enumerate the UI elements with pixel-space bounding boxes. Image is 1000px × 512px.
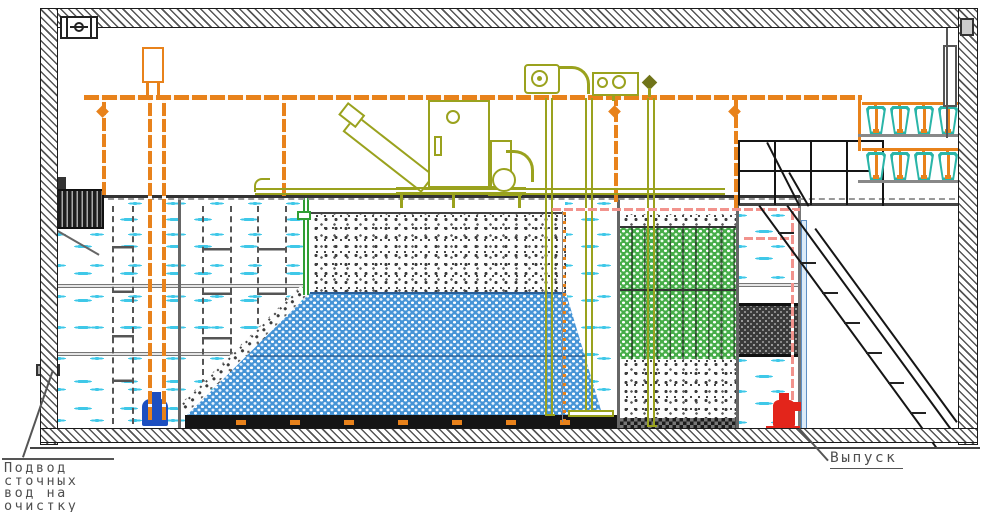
air-riser [282, 100, 286, 196]
fan-icon-axis [70, 26, 88, 28]
stair-step [844, 322, 860, 324]
air-vessel [938, 106, 958, 134]
water-level-dashed-line [58, 198, 955, 200]
inlet-label: Подвод сточных вод на очистку [4, 462, 78, 512]
olive-downpipe [647, 98, 649, 427]
wall-anchor-plate [960, 18, 974, 36]
compressor-dial [597, 77, 608, 88]
olive-pipe-elbow [647, 425, 657, 427]
air-vessel [914, 106, 934, 134]
blower-hub [537, 76, 542, 81]
blower-outlet-curve [558, 66, 590, 94]
green-divider-cap [297, 211, 311, 220]
wastewater-plant-section-drawing: Подвод сточных вод на очистку Выпуск [0, 0, 1000, 512]
table-leg [400, 194, 403, 208]
fan-icon-frame [90, 18, 92, 37]
table-leg [518, 194, 521, 208]
air-riser [162, 100, 166, 420]
railing-post [846, 140, 848, 205]
aeration-diffusers [192, 420, 612, 425]
gravel-strip [620, 214, 737, 226]
dark-media-block [739, 303, 799, 357]
valve-icon [608, 105, 621, 118]
outlet-label-text: Выпуск [830, 452, 897, 465]
building-top-wall [40, 8, 978, 28]
compressor-dial [612, 75, 626, 89]
railing-post [738, 140, 740, 205]
olive-downpipe [591, 98, 593, 416]
air-vessel [866, 106, 886, 134]
building-floor [40, 428, 978, 443]
olive-valve-stem [648, 88, 651, 97]
wall-corner-line [946, 28, 948, 138]
outlet-label: Выпуск [830, 452, 903, 469]
tank-tie-beam [739, 283, 799, 287]
outlet-pipe [801, 220, 807, 432]
green-biofilter-media [620, 226, 737, 359]
expansion-tank [142, 47, 164, 83]
olive-downpipe [545, 98, 547, 416]
olive-downpipe [585, 98, 587, 416]
divider-wall [736, 196, 739, 430]
building-right-wall [958, 8, 978, 445]
blue-media-seam [250, 355, 585, 357]
railing-post [810, 140, 812, 205]
outlet-pump-red [773, 400, 795, 426]
valve-icon [96, 105, 109, 118]
gravel-under-green [620, 359, 737, 418]
walkway-pipe-elbow [254, 178, 270, 192]
air-vessel [890, 152, 910, 180]
stair-stringer [786, 205, 958, 439]
olive-downpipe [551, 98, 553, 416]
vessel-feed-pipe [858, 100, 861, 151]
stair-step [822, 292, 838, 294]
fan-icon-frame [66, 18, 68, 37]
stair-handrail [814, 228, 957, 423]
railing-post [774, 140, 776, 205]
vessel-shelf [858, 180, 958, 183]
inlet-label-line: очистку [4, 500, 78, 512]
valve-icon [728, 105, 741, 118]
air-riser [148, 100, 152, 420]
feed-pump-base [488, 192, 522, 196]
air-vessel [890, 106, 910, 134]
divider-wall [617, 196, 620, 430]
cabinet-panel [434, 136, 442, 156]
blue-media-top-edge [310, 292, 566, 294]
right-upper-compartment-water [739, 212, 799, 304]
compressor-stub [612, 96, 615, 101]
olive-downpipe [653, 98, 655, 427]
guide-rail-dashed [112, 206, 134, 424]
channel-bottom-header [568, 410, 614, 417]
recirculation-riser [791, 210, 794, 400]
divider-wall [178, 197, 181, 428]
vessel-shelf [858, 134, 958, 137]
perforated-divider [562, 210, 566, 422]
cabinet-gauge [446, 110, 460, 124]
gravel-bed-top [310, 212, 566, 293]
tank-pipe [157, 83, 160, 95]
table-leg [452, 194, 455, 208]
ground-line [30, 447, 980, 449]
tank-pipe [146, 83, 149, 95]
stair-step [800, 262, 816, 264]
stair-step [910, 412, 926, 414]
pump-discharge-curve [506, 150, 534, 182]
stair-step [866, 352, 882, 354]
green-media-seam [620, 289, 737, 291]
air-vessel [938, 152, 958, 180]
outlet-pump-fitting [793, 402, 801, 411]
air-vessel [914, 152, 934, 180]
olive-pipe-elbow [545, 414, 555, 416]
stair-step [888, 382, 904, 384]
stair-step [778, 232, 794, 234]
